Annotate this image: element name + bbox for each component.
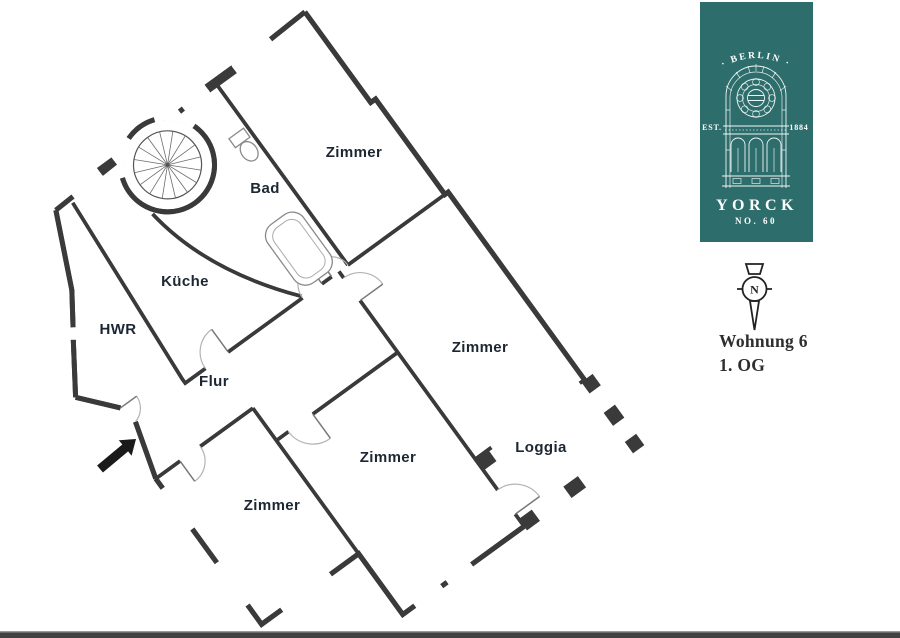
brand-badge: · BERLIN · (700, 2, 813, 242)
compass-needle (750, 301, 759, 330)
loggia-pillar (475, 450, 496, 471)
badge-est-year: 1884 (789, 123, 808, 132)
loggia-pillar (625, 434, 645, 454)
room-label-flur: Flur (199, 373, 229, 390)
room-label-zimmer-top: Zimmer (326, 144, 383, 161)
badge-number-text: no. 60 (735, 216, 777, 226)
floor-plan-page: Zimmer Bad Küche HWR Flur Zimmer Zimmer … (0, 0, 900, 638)
compass-n-label: N (750, 283, 759, 297)
entrance-arrow-icon (97, 439, 136, 473)
room-label-zimmer-mid: Zimmer (452, 339, 509, 356)
room-label-kueche: Küche (161, 273, 209, 290)
apartment-title: Wohnung 6 (719, 331, 808, 351)
badge-est-label: Est. (702, 123, 722, 132)
north-compass: N (737, 264, 772, 330)
compass-cap (746, 264, 763, 274)
loggia-pillar (563, 476, 586, 498)
bathtub (260, 207, 338, 291)
page-edge-highlight (0, 631, 900, 632)
badge-name-text: Yorck (716, 197, 798, 214)
interior-walls (0, 10, 633, 638)
room-label-zimmer-bottom-left: Zimmer (244, 497, 301, 514)
floor-plan-canvas: Zimmer Bad Küche HWR Flur Zimmer Zimmer … (0, 0, 900, 638)
room-label-zimmer-bottom-center: Zimmer (360, 449, 417, 466)
room-label-bad: Bad (250, 180, 280, 197)
exterior-walls (0, 6, 633, 638)
room-label-hwr: HWR (99, 321, 136, 338)
apartment-floor: 1. OG (719, 355, 765, 375)
page-edge-bar (0, 632, 900, 638)
floor-plan-drawing (0, 0, 644, 638)
room-label-loggia: Loggia (515, 439, 567, 456)
windows (0, 9, 628, 638)
